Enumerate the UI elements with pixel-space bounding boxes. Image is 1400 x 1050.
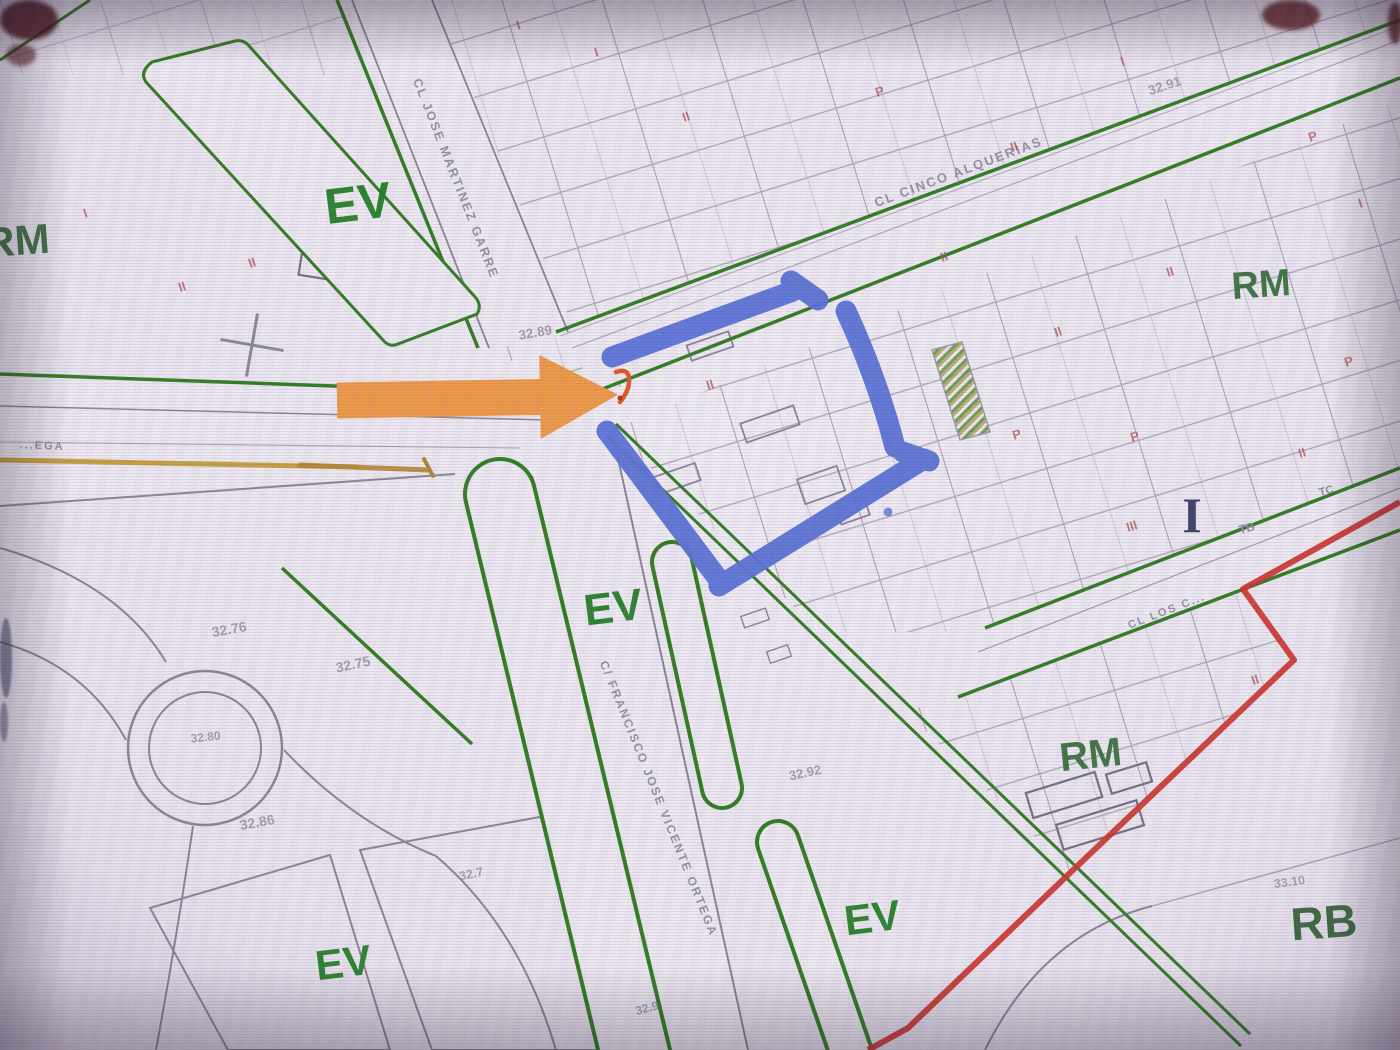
zone-label-rm-left-edge: RM <box>0 215 51 266</box>
roman-numeral-I-mark: I <box>1182 487 1201 543</box>
zone-label-ev-top-left: EV <box>321 171 395 235</box>
zone-label-rm-bottom: RM <box>1057 730 1123 780</box>
zone-label-ev-bottom-center: EV <box>842 891 903 944</box>
arrow-tip-dot <box>618 396 623 401</box>
zone-label-ev-center: EV <box>581 580 646 636</box>
zone-label-ev-bottom-left: EV <box>313 936 374 989</box>
zone-label-rb-bottom-right: RB <box>1289 894 1359 951</box>
cadastral-map: CL JOSE MARTINEZ GARRE CL CINCO ALQUERIA… <box>0 0 1400 1050</box>
blue-dot-annotation <box>884 508 893 517</box>
zone-label-rm-top-right: RM <box>1230 262 1292 308</box>
street-label-fragment-left: ...EGA <box>19 439 64 453</box>
monitor-photo: CL JOSE MARTINEZ GARRE CL CINCO ALQUERIA… <box>0 0 1400 1050</box>
